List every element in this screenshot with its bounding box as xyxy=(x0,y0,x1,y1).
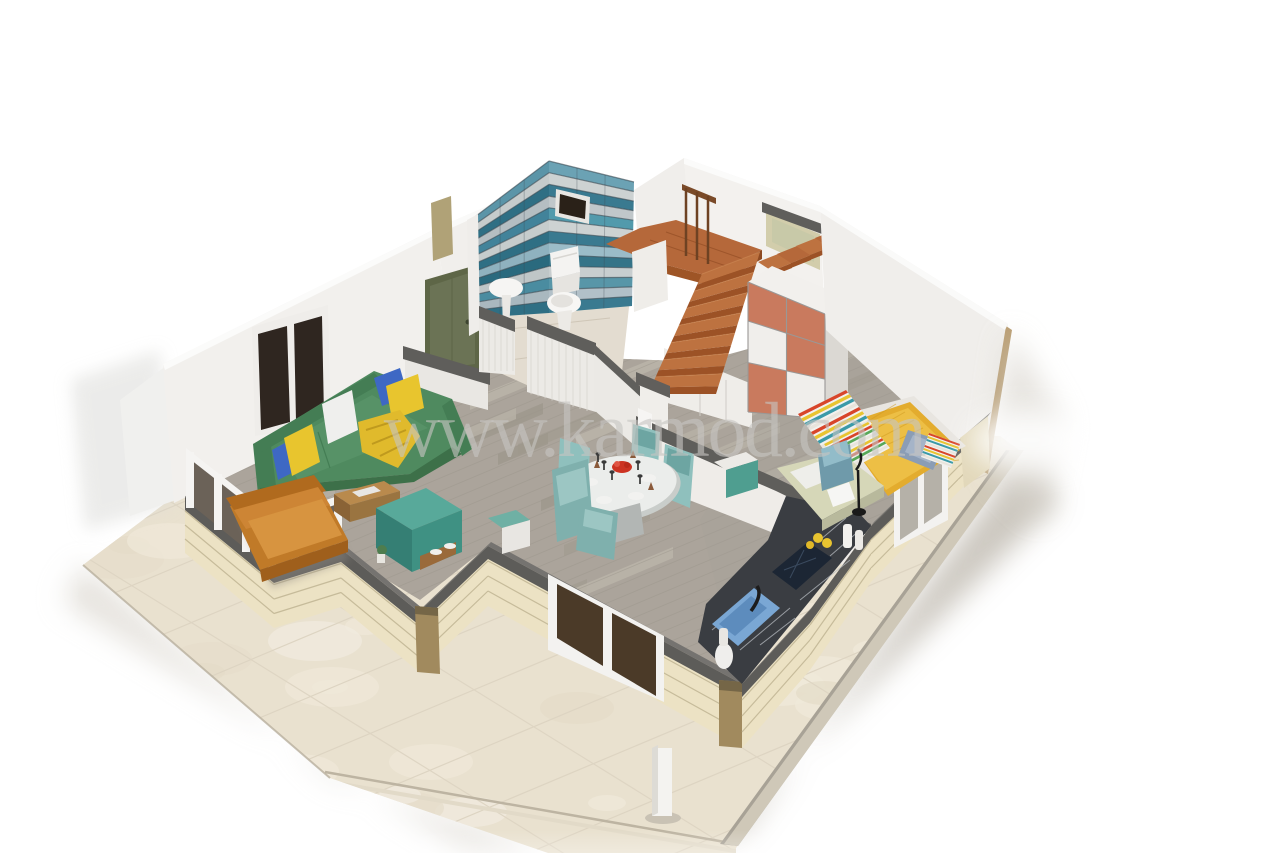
svg-text:www.karmod.com: www.karmod.com xyxy=(384,386,926,473)
